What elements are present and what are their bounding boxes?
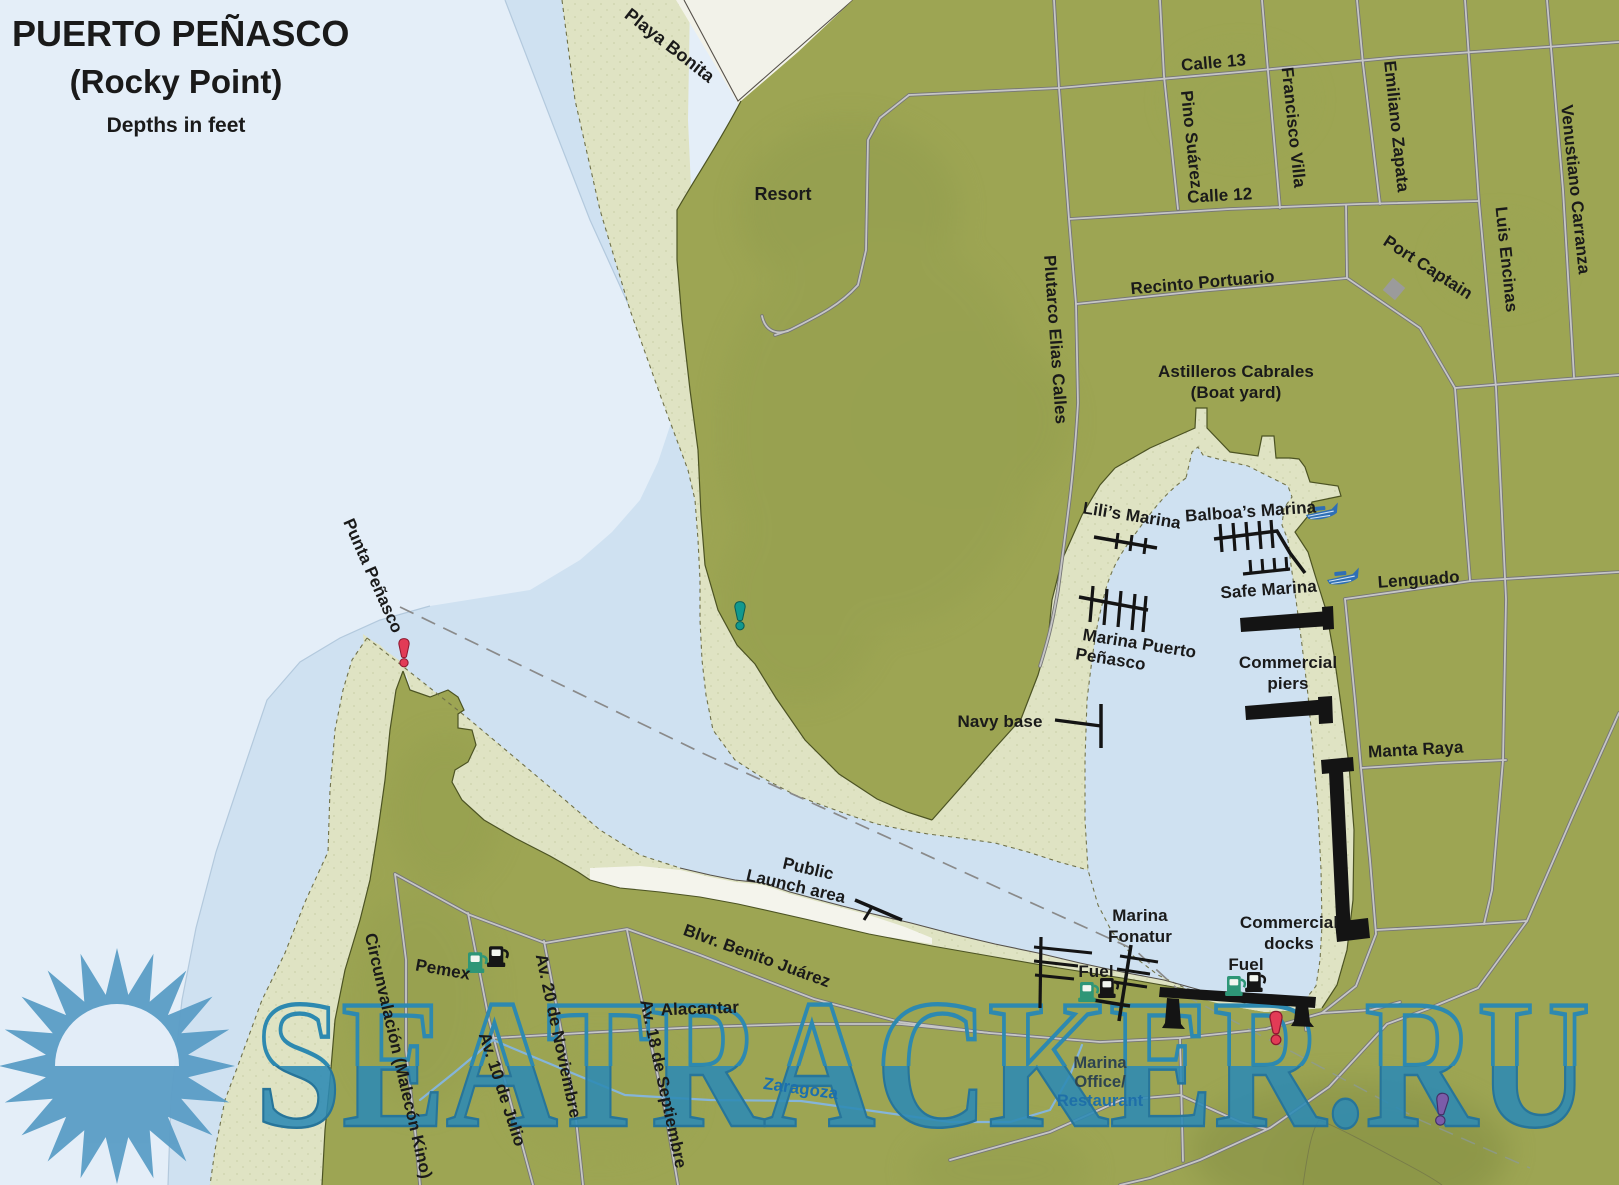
svg-text:Depths in feet: Depths in feet bbox=[107, 114, 246, 137]
svg-text:Fuel: Fuel bbox=[1078, 962, 1113, 981]
svg-text:Astilleros Cabrales: Astilleros Cabrales bbox=[1158, 362, 1314, 381]
svg-text:Marina: Marina bbox=[1073, 1054, 1127, 1072]
svg-text:Calle 12: Calle 12 bbox=[1187, 184, 1253, 206]
svg-text:(Rocky Point): (Rocky Point) bbox=[70, 63, 283, 100]
svg-text:Commercial: Commercial bbox=[1239, 653, 1337, 672]
svg-text:Restaurant: Restaurant bbox=[1057, 1092, 1144, 1110]
svg-text:Resort: Resort bbox=[754, 184, 811, 204]
svg-text:docks: docks bbox=[1264, 934, 1314, 953]
svg-text:Fonatur: Fonatur bbox=[1108, 927, 1172, 946]
svg-text:Fuel: Fuel bbox=[1228, 955, 1263, 974]
svg-text:Navy base: Navy base bbox=[957, 712, 1042, 731]
svg-text:PUERTO PEÑASCO: PUERTO PEÑASCO bbox=[12, 12, 349, 54]
svg-text:Alacantar: Alacantar bbox=[660, 998, 739, 1020]
svg-text:Marina: Marina bbox=[1112, 906, 1168, 925]
svg-text:piers: piers bbox=[1267, 674, 1308, 693]
svg-text:(Boat yard): (Boat yard) bbox=[1191, 383, 1282, 402]
svg-text:Office/: Office/ bbox=[1074, 1073, 1126, 1091]
svg-text:Commercial: Commercial bbox=[1240, 913, 1338, 932]
